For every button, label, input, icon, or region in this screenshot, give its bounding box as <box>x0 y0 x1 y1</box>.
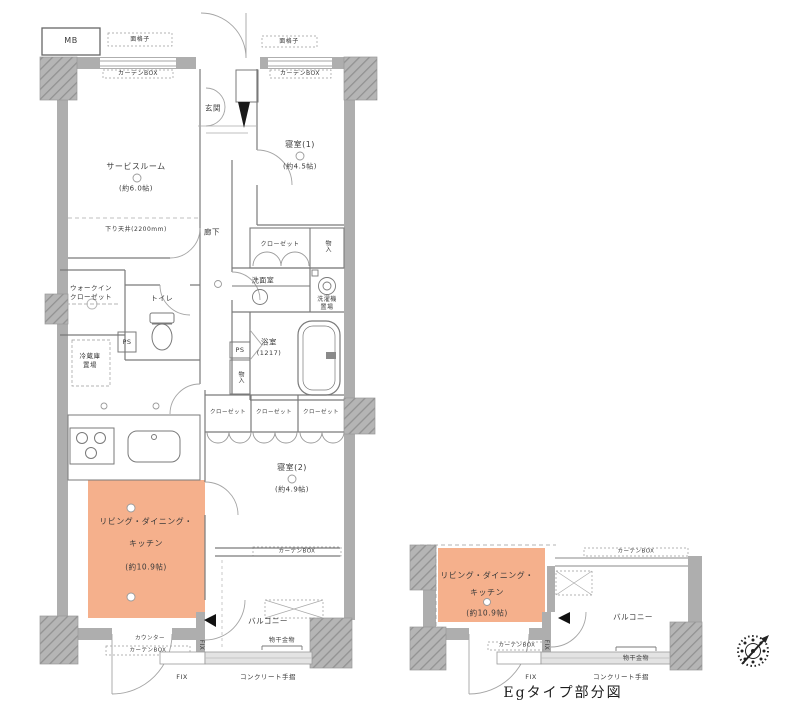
handrail-label-main: コンクリート手摺 <box>240 674 296 681</box>
entrance-label: 玄関 <box>205 104 221 112</box>
corridor-label: 廊下 <box>204 228 220 236</box>
grille-label-left: 面格子 <box>130 37 150 43</box>
balcony-label-main: バルコニー <box>248 617 288 625</box>
curtainbox-label-top-right: カーテンBOX <box>280 71 320 77</box>
eg-fix-panel <box>497 652 541 664</box>
drying-label-main: 物干金物 <box>269 638 295 644</box>
service-room-name: サービスルーム <box>106 163 165 171</box>
eg-handrail-label: コンクリート手摺 <box>593 674 649 681</box>
eg-ldk-name-2: キッチン <box>470 589 504 597</box>
entrance-door <box>201 13 246 58</box>
wic-label-2: クローゼット <box>70 294 112 301</box>
balcony-entry-marker <box>204 614 216 627</box>
eg-entry-marker <box>558 612 570 624</box>
bedroom1-size: (約4.5帖) <box>283 164 317 171</box>
eg-curtainbox-label-top: カーテンBOX <box>618 549 655 555</box>
fridge-label-1: 冷蔵庫 <box>80 353 101 360</box>
grille-label-right: 面格子 <box>279 39 299 45</box>
washer-label-2: 置場 <box>320 305 333 311</box>
floorplan-page: MB 面格子 面格子 カーテンBOX カーテンBOX サービスルーム (約6.0… <box>0 0 800 711</box>
eg-fix-label-bottom: FIX <box>525 674 537 681</box>
fix-label-vertical: FIX <box>198 640 204 651</box>
compass-icon <box>738 635 769 666</box>
eg-partial-plan <box>410 545 702 694</box>
bath-name: 浴室 <box>261 338 277 346</box>
eg-fix-label-vertical: FIX <box>543 640 549 651</box>
toilet-label: トイレ <box>151 296 174 303</box>
eg-ldk-size: (約10.9帖) <box>466 609 508 617</box>
closet-scallops <box>207 432 344 443</box>
drying-bracket <box>262 646 302 650</box>
ldk-floor-main <box>88 480 205 618</box>
eg-caption: Egタイプ部分図 <box>503 686 622 700</box>
bathtub-icon <box>298 321 340 395</box>
bedroom1-name: 寝室(1) <box>285 141 315 149</box>
bath-size: (1217) <box>257 350 282 357</box>
wic-label-1: ウォークイン <box>70 285 112 292</box>
washer-icon <box>319 278 336 295</box>
lowered-ceiling-note: 下り天井(2200mm) <box>105 227 167 233</box>
ldk-name-2: キッチン <box>129 540 163 548</box>
fix-label-bottom: FIX <box>176 674 188 681</box>
storage-label-hall: 物入 <box>324 240 330 252</box>
bedroom2-name: 寝室(2) <box>277 464 307 472</box>
windows <box>100 58 332 68</box>
closet-label-hall: クローゼット <box>260 242 299 248</box>
fix-panel <box>160 652 205 664</box>
bedroom2-size: (約4.9帖) <box>275 487 309 494</box>
kitchen-fixtures <box>68 415 200 480</box>
curtainbox-label-bedroom2: カーテンBOX <box>279 549 316 555</box>
eg-ldk-name-1: リビング・ダイニング・ <box>440 572 534 580</box>
closet-label-row-3: クローゼット <box>303 410 339 416</box>
ps-label-2: PS <box>235 347 244 354</box>
service-room-size: (約6.0帖) <box>119 186 153 193</box>
closet-label-row-2: クローゼット <box>256 410 292 416</box>
eg-balcony-label: バルコニー <box>613 613 653 621</box>
mb-label: MB <box>64 37 77 45</box>
sink-icon <box>128 431 180 462</box>
curtainbox-label-ldk: カーテンBOX <box>130 648 167 654</box>
floorplan-drawing <box>0 0 800 711</box>
ldk-name-1: リビング・ダイニング・ <box>99 518 193 526</box>
ps-label-1: PS <box>122 339 131 346</box>
eg-curtainbox-label-bottom: カーテンBOX <box>499 643 536 649</box>
entrance-marker <box>238 102 250 128</box>
fridge-label-2: 置場 <box>83 362 97 369</box>
counter-label: カウンター <box>135 636 165 642</box>
washroom-label: 洗面室 <box>252 278 275 285</box>
eg-drying-bracket <box>616 647 656 651</box>
ldk-size: (約10.9帖) <box>125 563 167 571</box>
eg-ceiling-light <box>484 599 491 606</box>
closet-label-row-1: クローゼット <box>210 410 246 416</box>
eg-drying-label: 物干金物 <box>623 656 649 662</box>
toilet-icon <box>150 313 174 350</box>
entrance-step <box>198 126 256 133</box>
shoe-cabinet <box>236 70 258 102</box>
curtainbox-label-top-left: カーテンBOX <box>118 71 158 77</box>
storage-label-bath: 物入 <box>237 371 243 383</box>
washer-label-1: 洗濯機 <box>317 297 337 303</box>
